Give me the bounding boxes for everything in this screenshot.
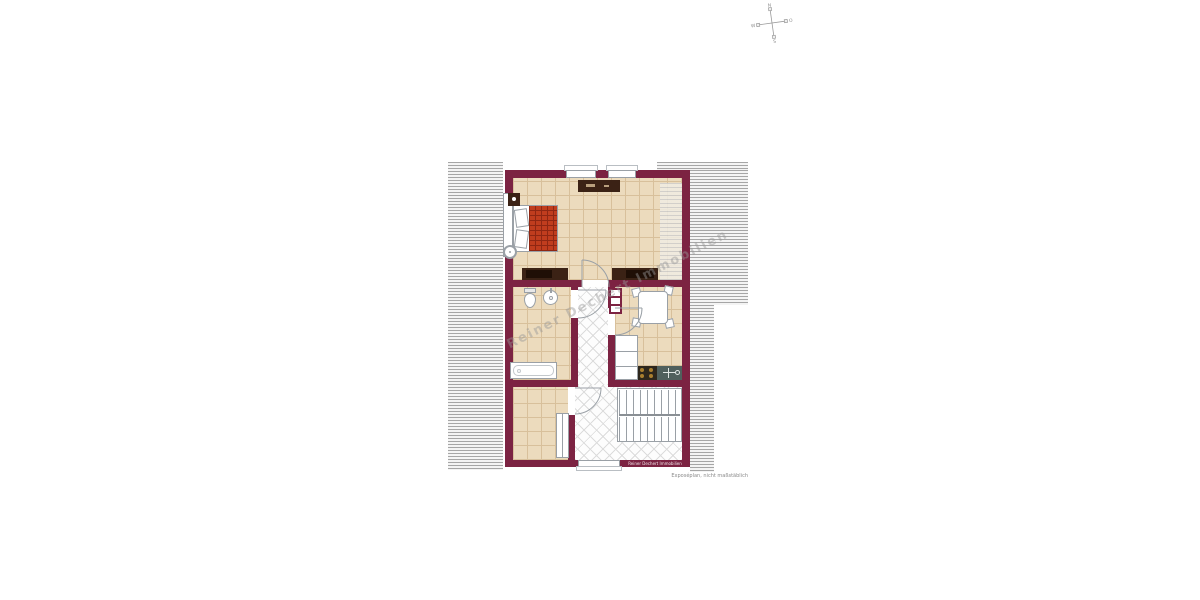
kitchen-door-arc [615,308,642,335]
page-canvas: { "plan": { "watermark_text": "Reiner De… [0,0,1200,600]
door-swings-layer [448,160,748,482]
floor-plan: Reiner Dechert Immobilien [448,160,748,482]
living-door-arc [582,260,609,287]
compass-label-w: W [751,23,757,30]
compass-label-s: S [773,39,777,44]
compass-marker-e [784,19,787,22]
compass-label-n: N [767,2,771,8]
compass-marker-w [756,23,759,26]
compass-icon: N O S W [750,2,794,44]
compass-marker-s [772,35,775,38]
compass-label-e: O [789,18,794,24]
disclaimer-text: Exposéplan, nicht maßstäblich [578,473,748,479]
bottom-room-door-arc [575,388,601,414]
